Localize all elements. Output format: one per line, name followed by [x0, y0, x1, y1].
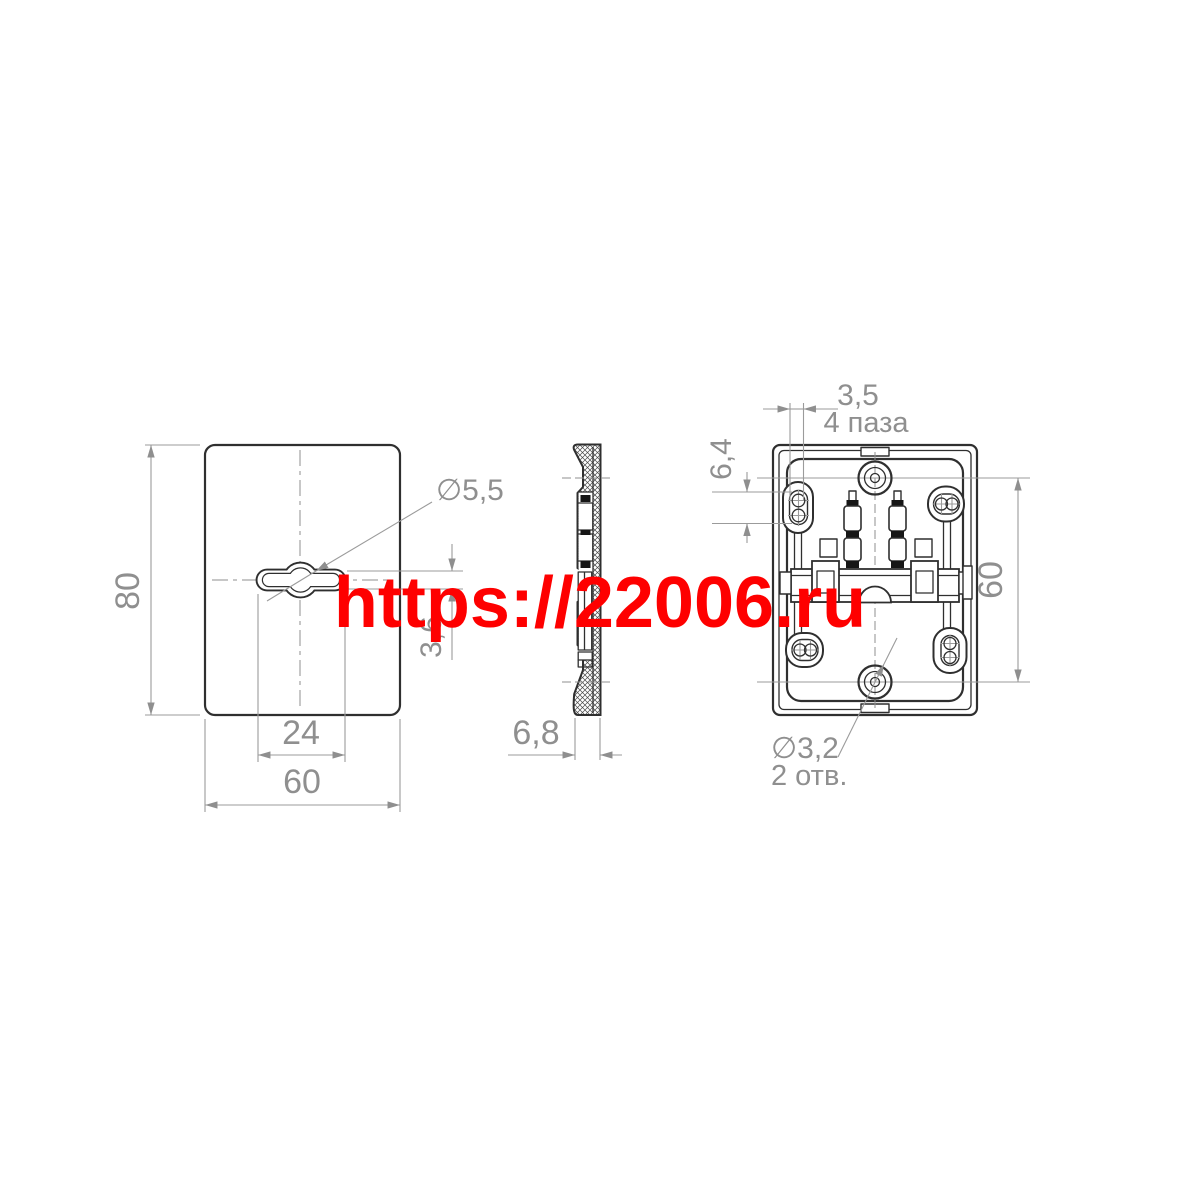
back-dim-60: 60 — [972, 478, 1018, 682]
back-dim-60-text: 60 — [972, 561, 1010, 599]
back-dim-3-5: 3,5 4 паза — [763, 379, 909, 500]
front-dim-24: 24 — [258, 594, 345, 762]
side-dim-6-8: 6,8 — [508, 714, 622, 760]
bar-post-right — [915, 539, 932, 557]
back-dim-6-4-text: 6,4 — [705, 438, 738, 480]
terminal-contact-left — [844, 491, 861, 568]
slot-boss-top-right — [928, 487, 964, 522]
side-dim-6-8-text: 6,8 — [512, 714, 559, 752]
slot-boss-top-left — [783, 482, 813, 533]
front-dim-80-text: 80 — [109, 572, 147, 610]
front-dim-24-text: 24 — [282, 714, 320, 752]
watermark-text: https://22006.ru — [334, 563, 866, 643]
drawing-canvas: ∅5,5 80 3,6 24 60 — [0, 0, 1200, 1200]
bar-bracket-right — [911, 561, 938, 602]
technical-drawing-page: ∅5,5 80 3,6 24 60 — [0, 0, 1200, 1200]
front-dim-60-text: 60 — [283, 763, 321, 801]
back-slots-label: 4 паза — [823, 407, 909, 439]
slot-boss-bottom-right — [934, 628, 967, 673]
front-hole-dia-label: ∅5,5 — [436, 474, 504, 507]
back-holes-count-label: 2 отв. — [771, 760, 847, 792]
front-dim-80: 80 — [109, 445, 200, 715]
terminal-contact-right — [889, 491, 906, 568]
back-hole-leader — [838, 638, 897, 757]
bar-post-left — [820, 539, 837, 557]
